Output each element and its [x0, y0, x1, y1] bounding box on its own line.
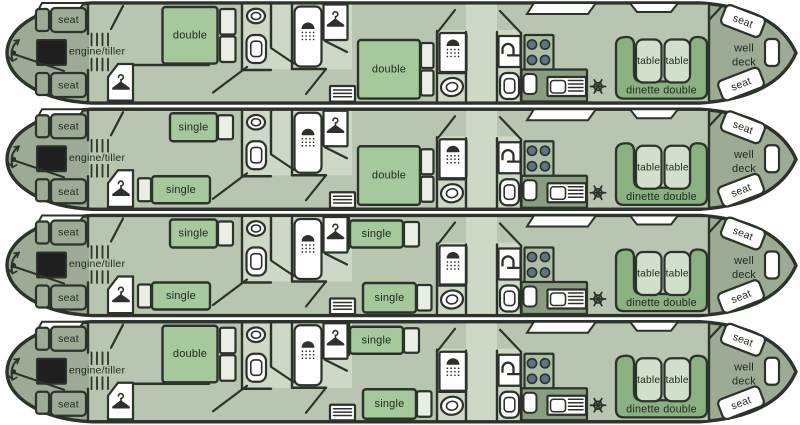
shower-spray-dot: [447, 158, 449, 160]
shower-cubicle: [440, 139, 467, 178]
basin-inner: [251, 225, 260, 232]
bed-cupboard: [220, 355, 236, 381]
bed-cupboard: [404, 328, 419, 353]
bed-cupboard: [138, 285, 151, 308]
toilet-seat: [251, 254, 262, 269]
table-label: table: [637, 375, 660, 386]
shower-spray-dot: [447, 261, 449, 263]
basin-icon: [247, 115, 265, 130]
stern-locker: [36, 9, 49, 31]
shower-spray-dot: [447, 268, 449, 270]
sink-bowl: [551, 187, 566, 200]
table-label: table: [666, 375, 689, 386]
shower-spray-dot: [450, 367, 452, 369]
shower-spray-dot: [309, 141, 311, 143]
bed-label: single: [375, 292, 405, 304]
stove-burners-icon: [540, 252, 549, 261]
basin-inner: [446, 188, 458, 198]
toilet-icon: [500, 392, 519, 418]
stern-locker: [36, 392, 49, 414]
well-deck-label: well: [733, 361, 754, 373]
shower-spray-dot: [302, 350, 304, 352]
roof-hatch: [527, 322, 596, 333]
bed-label: double: [173, 348, 207, 360]
counter-sink: [524, 287, 537, 307]
shower-spray-dot: [305, 244, 307, 246]
stove-burners-icon: [527, 146, 536, 155]
shower-spray-dot: [454, 261, 456, 263]
shower-spray-dot: [458, 265, 460, 267]
shower-tray: [295, 219, 322, 279]
stern-seat-label: seat: [58, 120, 79, 132]
toilet-seat: [504, 79, 515, 93]
shower-spray-dot: [313, 141, 315, 143]
stove-burners-icon: [540, 374, 549, 383]
shower-tray: [295, 113, 322, 173]
dinette-label: dinette double: [626, 297, 697, 309]
shower-spray-dot: [454, 56, 456, 58]
stove-burners-icon: [540, 40, 549, 49]
engine-block: [37, 253, 66, 278]
sink-bowl: [551, 293, 566, 306]
shower-spray-dot: [450, 158, 452, 160]
roof-hatch: [630, 3, 678, 12]
bow-locker: [765, 145, 779, 172]
roof-hatch: [527, 109, 596, 120]
boat-3: seatseatengine/tillersinglesinglesingles…: [7, 216, 796, 316]
shower-spray-dot: [305, 39, 307, 41]
shower-spray-dot: [302, 251, 304, 253]
bed-cupboard: [417, 391, 432, 417]
toilet-icon: [500, 73, 519, 99]
roof-hatch: [630, 109, 678, 118]
shower-spray-dot: [309, 244, 311, 246]
basin-icon: [247, 327, 265, 342]
shower-spray-dot: [454, 268, 456, 270]
stern-locker: [36, 179, 49, 201]
bed-cupboard: [220, 328, 236, 354]
stove-burners-icon: [527, 40, 536, 49]
shower-spray-dot: [309, 248, 311, 250]
stern-seat-label: seat: [58, 186, 79, 198]
shower-spray-dot: [454, 49, 456, 51]
shower-spray-dot: [313, 248, 315, 250]
toilet-seat: [504, 291, 515, 305]
bed-label: single: [166, 184, 196, 196]
stern-seat-label: seat: [58, 398, 79, 410]
bed-label: single: [179, 121, 209, 133]
shower-spray-dot: [454, 265, 456, 267]
shower-spray-dot: [302, 138, 304, 140]
counter-sink: [524, 74, 537, 94]
shower-spray-dot: [309, 39, 311, 41]
shower-spray-dot: [447, 49, 449, 51]
bed-cupboard: [421, 71, 434, 96]
stove-burners-icon: [527, 374, 536, 383]
shower-spray-dot: [309, 145, 311, 147]
shower-spray-dot: [454, 367, 456, 369]
shower-spray-dot: [305, 35, 307, 37]
shower-spray-dot: [313, 145, 315, 147]
shower-tray: [295, 7, 322, 67]
stove-burners-icon: [527, 252, 536, 261]
shower-spray-dot: [454, 158, 456, 160]
bed-cupboard: [218, 115, 233, 139]
boat-4: seatseatengine/tillerdoublesinglesinglet…: [7, 322, 796, 422]
well-deck-label: deck: [732, 269, 756, 281]
stove-burners-icon: [540, 146, 549, 155]
counter-sink: [524, 180, 537, 200]
bed-cupboard: [220, 37, 236, 63]
shower-spray-dot: [458, 56, 460, 58]
shower-spray-dot: [313, 251, 315, 253]
bed-cupboard: [404, 222, 419, 247]
basin-icon: [247, 9, 265, 24]
shower-spray-dot: [313, 357, 315, 359]
table-label: table: [666, 162, 689, 173]
corridor-floor: [466, 217, 497, 243]
toilet-icon: [500, 286, 519, 312]
well-deck-label: deck: [732, 163, 756, 175]
shower-spray-dot: [458, 367, 460, 369]
stern-seat-label: seat: [58, 292, 79, 304]
shower-spray-dot: [302, 145, 304, 147]
table-label: table: [637, 56, 660, 67]
engine-block: [37, 40, 66, 65]
engine-tiller-label: engine/tiller: [69, 46, 126, 58]
shower-spray-dot: [302, 141, 304, 143]
shower-cubicle: [440, 33, 467, 72]
dinette-label: dinette double: [626, 191, 697, 203]
engine-block: [37, 146, 66, 171]
stern-seat-label: seat: [58, 14, 79, 26]
roof-hatch: [630, 216, 678, 225]
shower-spray-dot: [302, 354, 304, 356]
shower-spray-dot: [458, 158, 460, 160]
shower-spray-dot: [313, 354, 315, 356]
shower-spray-dot: [447, 162, 449, 164]
basin-icon: [247, 221, 265, 236]
bed-cupboard: [138, 178, 151, 201]
bed-label: single: [362, 228, 392, 240]
shower-spray-dot: [309, 357, 311, 359]
shower-spray-dot: [454, 162, 456, 164]
shower-spray-dot: [313, 39, 315, 41]
stove-burners-icon: [527, 359, 536, 368]
shower-spray-dot: [302, 32, 304, 34]
bed-label: double: [372, 170, 406, 182]
table-label: table: [637, 162, 660, 173]
shower-spray-dot: [305, 251, 307, 253]
shower-spray-dot: [302, 39, 304, 41]
shower-spray-dot: [454, 155, 456, 157]
shower-spray-dot: [309, 354, 311, 356]
bed-cupboard: [421, 43, 434, 68]
shower-spray-dot: [447, 155, 449, 157]
shower-spray-dot: [458, 261, 460, 263]
shower-spray-dot: [450, 155, 452, 157]
boat-2: seatseatengine/tillersinglesingledoublet…: [7, 109, 796, 209]
dinette-label: dinette double: [626, 403, 697, 415]
bed-cupboard: [417, 285, 432, 311]
shower-spray-dot: [447, 52, 449, 54]
bed-label: double: [173, 29, 207, 41]
stove-burners-icon: [527, 55, 536, 64]
shower-spray-dot: [305, 350, 307, 352]
stern-seat-label: seat: [58, 80, 79, 92]
corridor-floor: [466, 5, 497, 31]
well-deck-label: well: [733, 43, 754, 55]
shower-spray-dot: [458, 49, 460, 51]
shower-spray-dot: [450, 268, 452, 270]
basin-inner: [446, 82, 458, 92]
stove-burners-icon: [527, 268, 536, 277]
shower-spray-dot: [305, 141, 307, 143]
shower-spray-dot: [309, 350, 311, 352]
basin-inner: [446, 401, 458, 411]
sink-bowl: [551, 81, 566, 94]
well-deck-label: well: [733, 255, 754, 267]
shower-spray-dot: [305, 248, 307, 250]
toilet-icon: [247, 35, 267, 63]
shower-spray-dot: [305, 138, 307, 140]
bed-cupboard: [218, 222, 233, 246]
shower-spray-dot: [447, 265, 449, 267]
shower-spray-dot: [450, 162, 452, 164]
shower-spray-dot: [454, 371, 456, 373]
shower-cubicle: [440, 246, 467, 285]
shower-spray-dot: [305, 32, 307, 34]
toilet-icon: [247, 248, 267, 276]
shower-spray-dot: [313, 35, 315, 37]
shower-spray-dot: [458, 162, 460, 164]
roof-hatch: [527, 216, 596, 227]
shower-spray-dot: [450, 371, 452, 373]
shower-spray-dot: [305, 357, 307, 359]
shower-spray-dot: [302, 248, 304, 250]
floor-plans-canvas: seatseatengine/tillerdoubledoubletableta…: [0, 0, 800, 425]
bed-label: single: [362, 334, 392, 346]
engine-tiller-label: engine/tiller: [69, 152, 126, 164]
shower-spray-dot: [450, 261, 452, 263]
corridor-floor: [466, 111, 497, 137]
basin-inner: [251, 13, 260, 20]
toilet-seat: [504, 185, 515, 199]
stern-locker: [36, 222, 49, 244]
bed-label: single: [179, 228, 209, 240]
stern-seat-label: seat: [58, 227, 79, 239]
stern-locker: [36, 115, 49, 137]
stern-locker: [36, 328, 49, 350]
shower-spray-dot: [309, 35, 311, 37]
shower-spray-dot: [450, 56, 452, 58]
shower-spray-dot: [447, 367, 449, 369]
shower-spray-dot: [450, 52, 452, 54]
shower-spray-dot: [313, 138, 315, 140]
engine-tiller-label: engine/tiller: [69, 364, 126, 376]
toilet-seat: [251, 147, 262, 162]
stern-locker: [36, 73, 49, 95]
shower-spray-dot: [313, 244, 315, 246]
well-deck-label: deck: [732, 375, 756, 387]
shower-spray-dot: [450, 265, 452, 267]
bed-label: double: [372, 63, 406, 75]
shower-spray-dot: [305, 145, 307, 147]
narrowboat-floor-plans: seatseatengine/tillerdoubledoubletableta…: [0, 0, 800, 425]
shower-spray-dot: [313, 32, 315, 34]
shower-cubicle: [440, 352, 467, 391]
shower-spray-dot: [447, 374, 449, 376]
shower-spray-dot: [302, 244, 304, 246]
basin-inner: [446, 294, 458, 304]
table-label: table: [666, 56, 689, 67]
basin-inner: [251, 331, 260, 338]
shower-tray: [295, 325, 322, 385]
stern-locker: [36, 286, 49, 308]
roof-hatch: [630, 322, 678, 331]
shower-spray-dot: [309, 32, 311, 34]
shower-spray-dot: [309, 251, 311, 253]
stove-burners-icon: [540, 359, 549, 368]
shower-spray-dot: [458, 374, 460, 376]
table-label: table: [637, 269, 660, 280]
roof-hatch: [527, 3, 596, 14]
shower-spray-dot: [313, 350, 315, 352]
well-deck-label: well: [733, 149, 754, 161]
bed-label: single: [166, 290, 196, 302]
dinette-label: dinette double: [626, 85, 697, 97]
engine-block: [37, 359, 66, 384]
engine-tiller-label: engine/tiller: [69, 258, 126, 270]
shower-spray-dot: [450, 374, 452, 376]
stern-seat-label: seat: [58, 333, 79, 345]
bow-locker: [765, 252, 779, 279]
stove-burners-icon: [540, 268, 549, 277]
stove-burners-icon: [527, 162, 536, 171]
stove-burners-icon: [540, 55, 549, 64]
shower-spray-dot: [450, 49, 452, 51]
shower-spray-dot: [305, 354, 307, 356]
shower-spray-dot: [454, 52, 456, 54]
bow-locker: [765, 358, 779, 385]
counter-sink: [524, 393, 537, 413]
sink-bowl: [551, 399, 566, 412]
corridor-floor: [466, 323, 497, 349]
toilet-icon: [247, 354, 267, 382]
bed-cupboard: [220, 9, 236, 35]
table-label: table: [666, 269, 689, 280]
shower-spray-dot: [302, 357, 304, 359]
shower-spray-dot: [458, 371, 460, 373]
boat-1: seatseatengine/tillerdoubledoubletableta…: [7, 3, 796, 103]
bed-cupboard: [421, 149, 434, 174]
toilet-seat: [504, 397, 515, 411]
toilet-icon: [247, 141, 267, 169]
toilet-seat: [251, 41, 262, 56]
shower-spray-dot: [447, 56, 449, 58]
basin-inner: [251, 119, 260, 126]
toilet-seat: [251, 360, 262, 375]
well-deck-label: deck: [732, 57, 756, 69]
bed-cupboard: [421, 177, 434, 202]
bed-label: single: [375, 398, 405, 410]
shower-spray-dot: [454, 374, 456, 376]
bow-locker: [765, 39, 779, 66]
shower-spray-dot: [458, 268, 460, 270]
shower-spray-dot: [447, 371, 449, 373]
shower-spray-dot: [309, 138, 311, 140]
stove-burners-icon: [540, 162, 549, 171]
shower-spray-dot: [458, 52, 460, 54]
shower-spray-dot: [458, 155, 460, 157]
toilet-icon: [500, 179, 519, 205]
shower-spray-dot: [302, 35, 304, 37]
